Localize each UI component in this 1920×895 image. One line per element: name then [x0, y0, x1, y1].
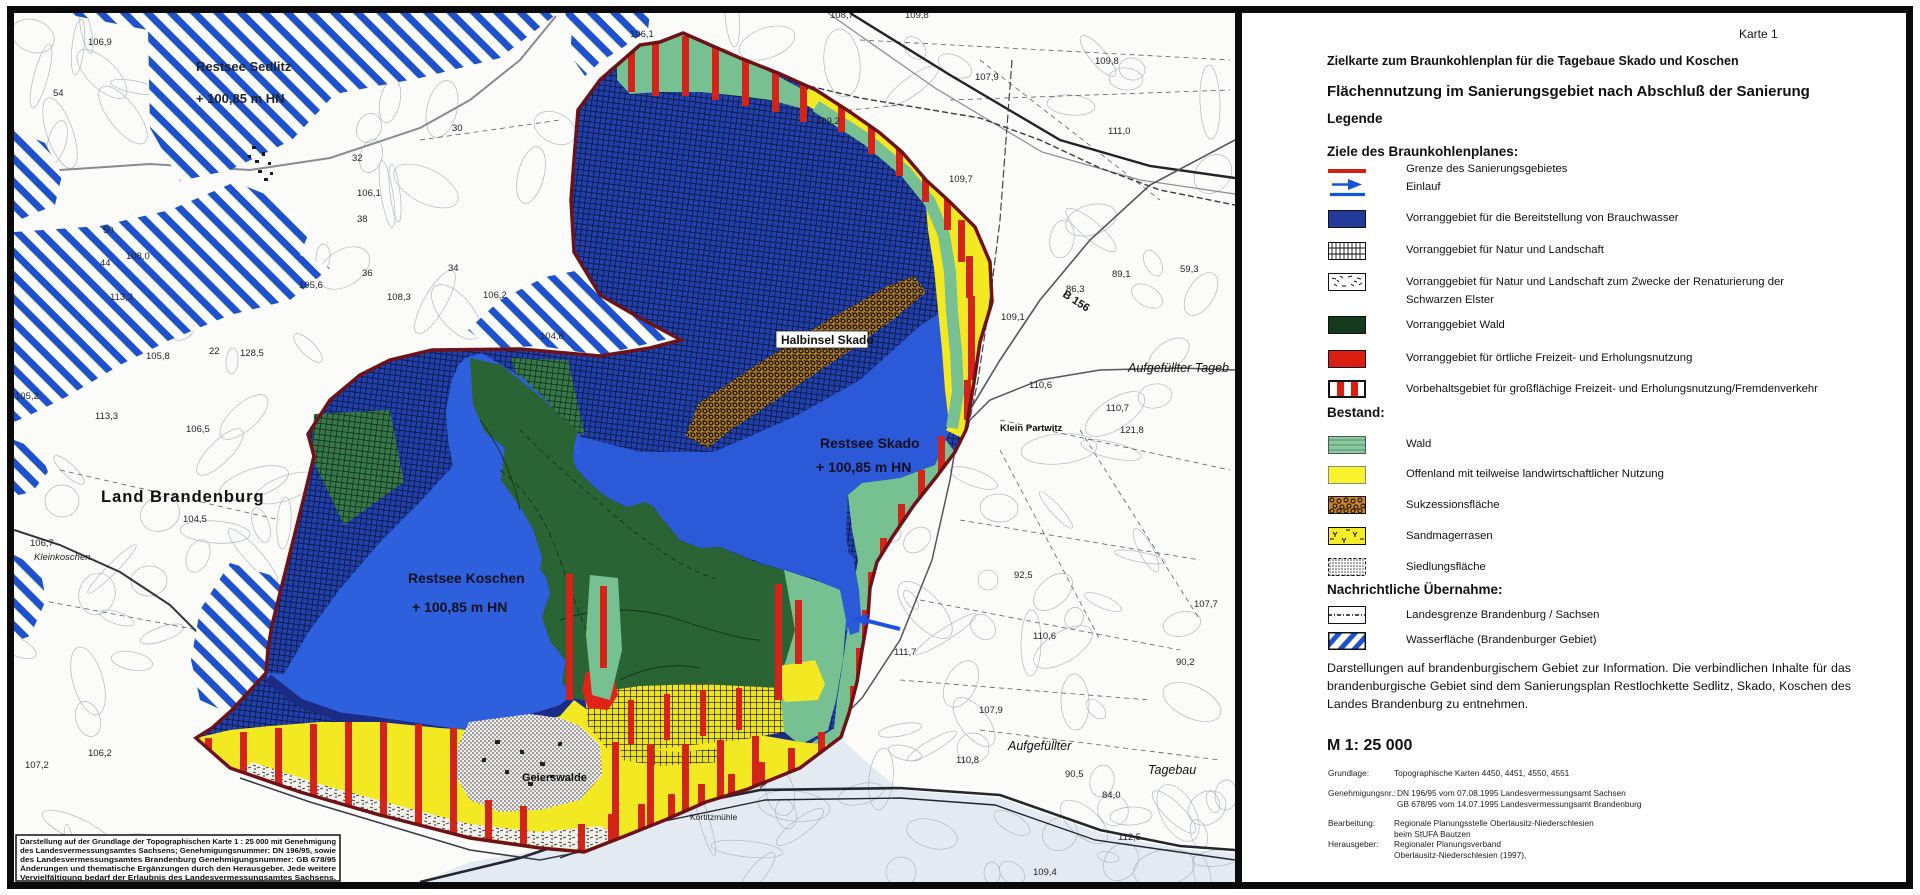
svg-text:Aufgefüllter: Aufgefüllter [1007, 739, 1072, 753]
svg-text:Tagebau: Tagebau [1148, 763, 1196, 777]
svg-text:108,0: 108,0 [126, 251, 150, 262]
svg-text:+ 100,85 m HN: + 100,85 m HN [196, 91, 285, 106]
svg-text:34: 34 [448, 263, 459, 274]
svg-text:105,6: 105,6 [299, 280, 323, 291]
svg-text:92,5: 92,5 [1014, 570, 1033, 581]
svg-text:89,1: 89,1 [1112, 269, 1131, 280]
svg-text:30: 30 [452, 123, 463, 134]
svg-text:54: 54 [53, 88, 64, 99]
svg-text:104,5: 104,5 [183, 514, 207, 525]
svg-text:Restsee Koschen: Restsee Koschen [408, 570, 525, 586]
svg-text:106,9: 106,9 [88, 37, 112, 48]
svg-text:59,3: 59,3 [1180, 264, 1199, 275]
svg-text:105,2: 105,2 [15, 391, 39, 402]
svg-text:107,9: 107,9 [979, 705, 1003, 716]
svg-text:Kortitzmühle: Kortitzmühle [690, 812, 738, 822]
svg-text:+ 100,85 m HN: + 100,85 m HN [816, 459, 911, 475]
svg-text:109,8: 109,8 [905, 13, 929, 21]
svg-text:109,4: 109,4 [1033, 867, 1057, 878]
svg-text:36: 36 [362, 268, 373, 279]
svg-text:Geierswalde: Geierswalde [522, 772, 587, 784]
svg-text:109,2: 109,2 [816, 116, 840, 127]
svg-text:90,2: 90,2 [1176, 657, 1195, 668]
svg-text:22: 22 [209, 346, 220, 357]
svg-text:111,0: 111,0 [1108, 126, 1130, 137]
svg-text:des Landesvermessungsamtes Sac: des Landesvermessungsamtes Sachsens; Gen… [20, 846, 336, 855]
svg-text:Restsee Skado: Restsee Skado [820, 435, 920, 451]
svg-text:110,6: 110,6 [1033, 631, 1056, 642]
svg-text:50: 50 [103, 225, 114, 236]
svg-text:108,7: 108,7 [830, 13, 854, 21]
svg-text:44: 44 [100, 258, 111, 269]
svg-text:Kleinkoschen: Kleinkoschen [34, 552, 91, 563]
svg-text:106,5: 106,5 [186, 424, 210, 435]
svg-text:113,3: 113,3 [95, 411, 118, 422]
svg-text:106,1: 106,1 [630, 29, 654, 40]
svg-text:109,7: 109,7 [949, 174, 973, 185]
svg-text:106,2: 106,2 [483, 290, 507, 301]
svg-text:Klein Partwitz: Klein Partwitz [1000, 423, 1063, 434]
svg-text:121,8: 121,8 [1120, 425, 1144, 436]
svg-text:108,3: 108,3 [387, 292, 411, 303]
svg-text:107,2: 107,2 [25, 760, 49, 771]
svg-text:107,9: 107,9 [975, 72, 999, 83]
svg-text:Halbinsel Skado: Halbinsel Skado [781, 333, 874, 347]
svg-text:104,8: 104,8 [540, 331, 564, 342]
svg-text:106,7: 106,7 [30, 538, 54, 549]
svg-text:Restsee Sedlitz: Restsee Sedlitz [196, 59, 292, 74]
svg-text:des Landesvermessungsamtes Bra: des Landesvermessungsamtes Brandenburg G… [20, 855, 336, 864]
svg-text:110,8: 110,8 [956, 755, 979, 766]
svg-text:110,6: 110,6 [1029, 380, 1052, 391]
svg-text:106,2: 106,2 [88, 748, 112, 759]
svg-text:Land Brandenburg: Land Brandenburg [101, 488, 265, 506]
svg-text:111,7: 111,7 [894, 647, 916, 658]
svg-text:Änderungen und thematische Erg: Änderungen und thematische Ergänzungen d… [20, 864, 336, 873]
svg-text:+ 100,85 m HN: + 100,85 m HN [412, 599, 507, 615]
svg-text:Vervielfältigung bedarf der Er: Vervielfältigung bedarf der Erlaubnis de… [20, 873, 336, 882]
svg-text:128,5: 128,5 [240, 348, 264, 359]
svg-text:84,0: 84,0 [1102, 790, 1121, 801]
svg-text:105,8: 105,8 [146, 351, 170, 362]
svg-text:109,8: 109,8 [1095, 56, 1119, 67]
svg-text:38: 38 [357, 214, 368, 225]
svg-text:Aufgefüllter Tageb: Aufgefüllter Tageb [1127, 361, 1229, 375]
svg-text:Darstellung auf der Grundlage: Darstellung auf der Grundlage der Topogr… [20, 837, 337, 846]
svg-text:86,3: 86,3 [1066, 284, 1085, 295]
svg-text:113,3: 113,3 [110, 292, 133, 303]
svg-text:112,5: 112,5 [1118, 832, 1141, 843]
svg-text:107,7: 107,7 [1194, 599, 1218, 610]
svg-text:90,5: 90,5 [1065, 769, 1084, 780]
svg-text:109,1: 109,1 [1001, 312, 1025, 323]
svg-text:110,7: 110,7 [1106, 403, 1129, 414]
svg-text:32: 32 [352, 153, 363, 164]
svg-text:106,1: 106,1 [357, 188, 381, 199]
